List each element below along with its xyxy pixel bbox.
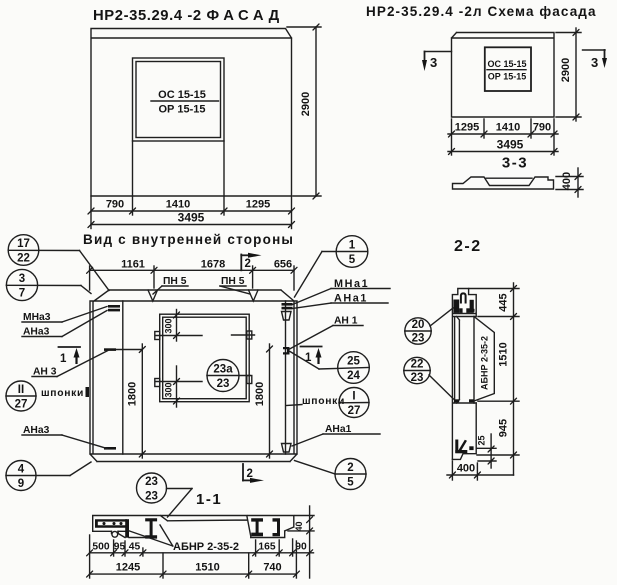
svg-text:5: 5 [347, 477, 354, 489]
svg-text:300: 300 [164, 318, 174, 333]
svg-text:22: 22 [17, 253, 30, 265]
svg-text:300: 300 [164, 382, 174, 397]
svg-text:4: 4 [18, 464, 25, 476]
svg-text:1295: 1295 [246, 199, 270, 211]
svg-text:3: 3 [19, 273, 25, 285]
svg-text:1800: 1800 [127, 382, 139, 406]
svg-text:ОР 15-15: ОР 15-15 [488, 72, 527, 82]
svg-text:3: 3 [591, 55, 598, 70]
svg-text:НР2-35.29.4 -2л Схема фасада: НР2-35.29.4 -2л Схема фасада [366, 4, 597, 19]
svg-text:95: 95 [114, 542, 126, 553]
svg-text:27: 27 [15, 399, 28, 411]
svg-text:шпонки: шпонки [41, 388, 84, 399]
svg-text:23: 23 [217, 378, 230, 390]
svg-text:1295: 1295 [455, 122, 479, 134]
svg-text:2: 2 [245, 258, 251, 270]
svg-text:1-1: 1-1 [196, 491, 222, 508]
svg-text:165: 165 [258, 542, 275, 553]
svg-text:740: 740 [263, 562, 281, 574]
svg-text:945: 945 [498, 419, 510, 437]
svg-text:1410: 1410 [166, 199, 190, 211]
svg-text:1: 1 [60, 353, 67, 365]
svg-text:25: 25 [477, 435, 487, 445]
svg-text:7: 7 [19, 288, 25, 300]
svg-text:5: 5 [349, 254, 356, 266]
svg-text:1: 1 [349, 240, 356, 252]
svg-text:656: 656 [274, 259, 292, 271]
svg-text:1510: 1510 [498, 342, 510, 366]
svg-text:400: 400 [457, 463, 475, 475]
svg-text:I: I [352, 391, 355, 403]
svg-text:20: 20 [412, 319, 425, 331]
svg-text:790: 790 [106, 199, 124, 211]
svg-text:400: 400 [561, 172, 573, 190]
svg-text:2900: 2900 [560, 58, 572, 82]
svg-text:23а: 23а [213, 364, 233, 376]
svg-text:22: 22 [411, 359, 424, 371]
svg-text:23: 23 [412, 333, 425, 345]
svg-text:40: 40 [294, 521, 304, 531]
svg-text:1800: 1800 [254, 382, 266, 406]
svg-text:17: 17 [17, 238, 30, 250]
svg-text:ОР 15-15: ОР 15-15 [158, 104, 205, 116]
svg-text:2: 2 [247, 468, 253, 480]
svg-text:АБНР 2-35-2: АБНР 2-35-2 [173, 541, 239, 553]
svg-text:445: 445 [498, 293, 510, 311]
svg-text:ОС 15-15: ОС 15-15 [487, 59, 526, 69]
svg-text:1510: 1510 [195, 562, 219, 574]
svg-text:500: 500 [92, 542, 109, 553]
svg-text:3-3: 3-3 [502, 155, 528, 172]
svg-text:2900: 2900 [300, 92, 312, 116]
svg-text:II: II [18, 384, 24, 396]
svg-text:1245: 1245 [116, 562, 140, 574]
svg-text:НР2-35.29.4 -2 ФАСАД: НР2-35.29.4 -2 ФАСАД [93, 8, 284, 24]
svg-text:3: 3 [430, 55, 437, 70]
svg-text:45: 45 [129, 542, 141, 553]
svg-text:1410: 1410 [496, 122, 520, 134]
svg-text:1678: 1678 [201, 259, 225, 271]
svg-text:шпонки: шпонки [302, 396, 345, 407]
svg-text:23: 23 [145, 491, 158, 503]
svg-text:27: 27 [348, 405, 361, 417]
svg-text:Вид с внутренней стороны: Вид с внутренней стороны [83, 232, 294, 247]
svg-text:1161: 1161 [121, 259, 145, 271]
svg-text:790: 790 [533, 122, 551, 134]
svg-text:23: 23 [411, 372, 424, 384]
svg-text:2-2: 2-2 [454, 238, 482, 255]
svg-text:3495: 3495 [497, 138, 524, 152]
svg-text:9: 9 [18, 478, 24, 490]
svg-text:23: 23 [145, 476, 158, 488]
svg-text:3495: 3495 [178, 211, 205, 225]
svg-text:2: 2 [347, 462, 353, 474]
svg-text:ОС 15-15: ОС 15-15 [158, 89, 206, 101]
svg-text:АБНР 2-35-2: АБНР 2-35-2 [480, 336, 490, 390]
svg-text:25: 25 [347, 356, 360, 368]
svg-text:24: 24 [347, 370, 360, 382]
